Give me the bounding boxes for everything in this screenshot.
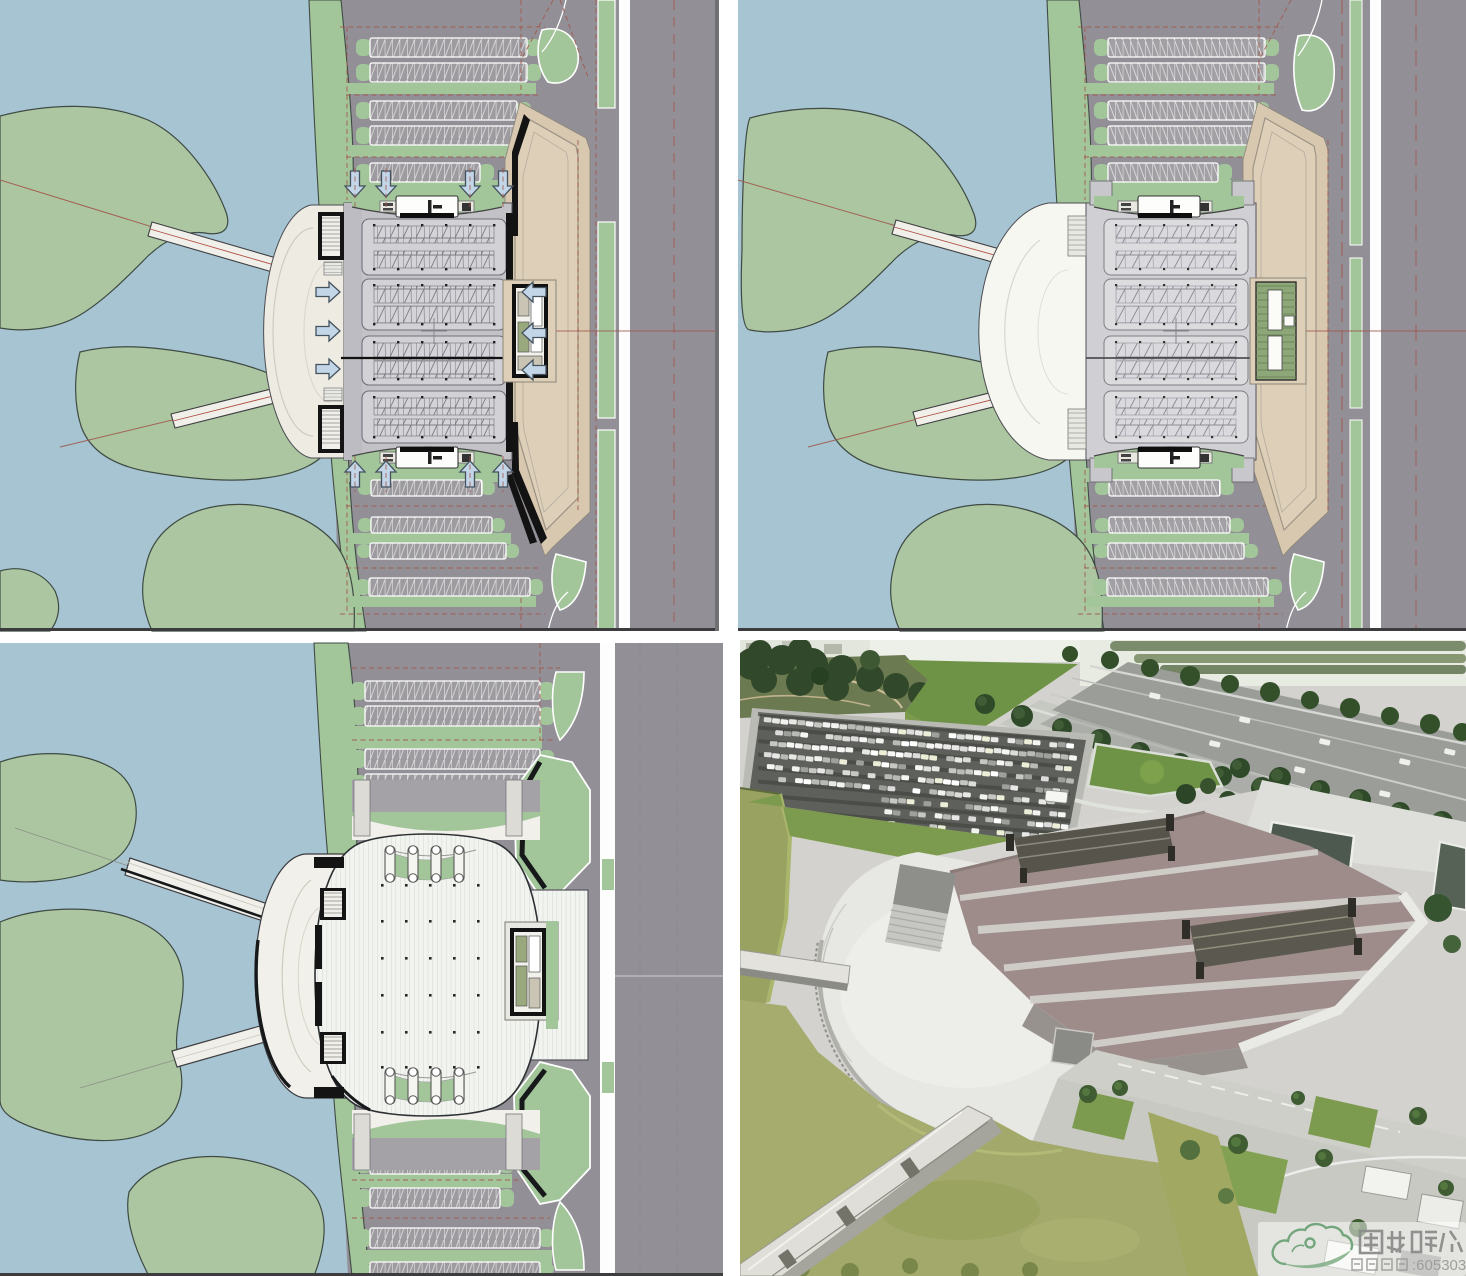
svg-text::605303: :605303 [1412, 1257, 1466, 1274]
